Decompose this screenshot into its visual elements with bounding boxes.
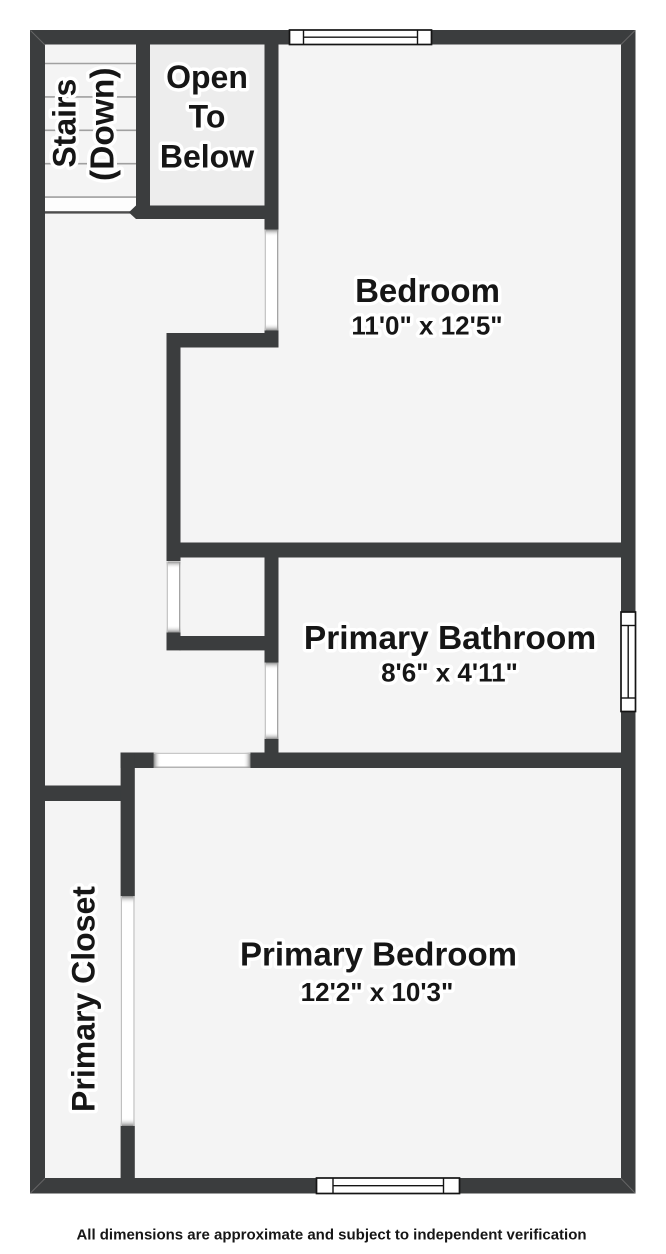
svg-text:11'0" x 12'5": 11'0" x 12'5" — [351, 311, 502, 341]
svg-text:(Down): (Down) — [85, 67, 122, 181]
svg-text:12'2" x 10'3": 12'2" x 10'3" — [301, 977, 454, 1007]
svg-text:Below: Below — [160, 139, 254, 175]
svg-text:Stairs: Stairs — [47, 79, 83, 168]
svg-text:8'6" x 4'11": 8'6" x 4'11" — [381, 658, 518, 688]
svg-text:Open: Open — [166, 59, 248, 95]
svg-text:All dimensions are approximate: All dimensions are approximate and subje… — [76, 1227, 586, 1244]
svg-text:Primary Closet: Primary Closet — [66, 886, 102, 1112]
svg-text:Bedroom: Bedroom — [355, 272, 500, 309]
svg-text:Primary Bathroom: Primary Bathroom — [304, 620, 596, 657]
svg-text:Primary Bedroom: Primary Bedroom — [240, 936, 517, 973]
svg-text:To: To — [189, 99, 226, 135]
